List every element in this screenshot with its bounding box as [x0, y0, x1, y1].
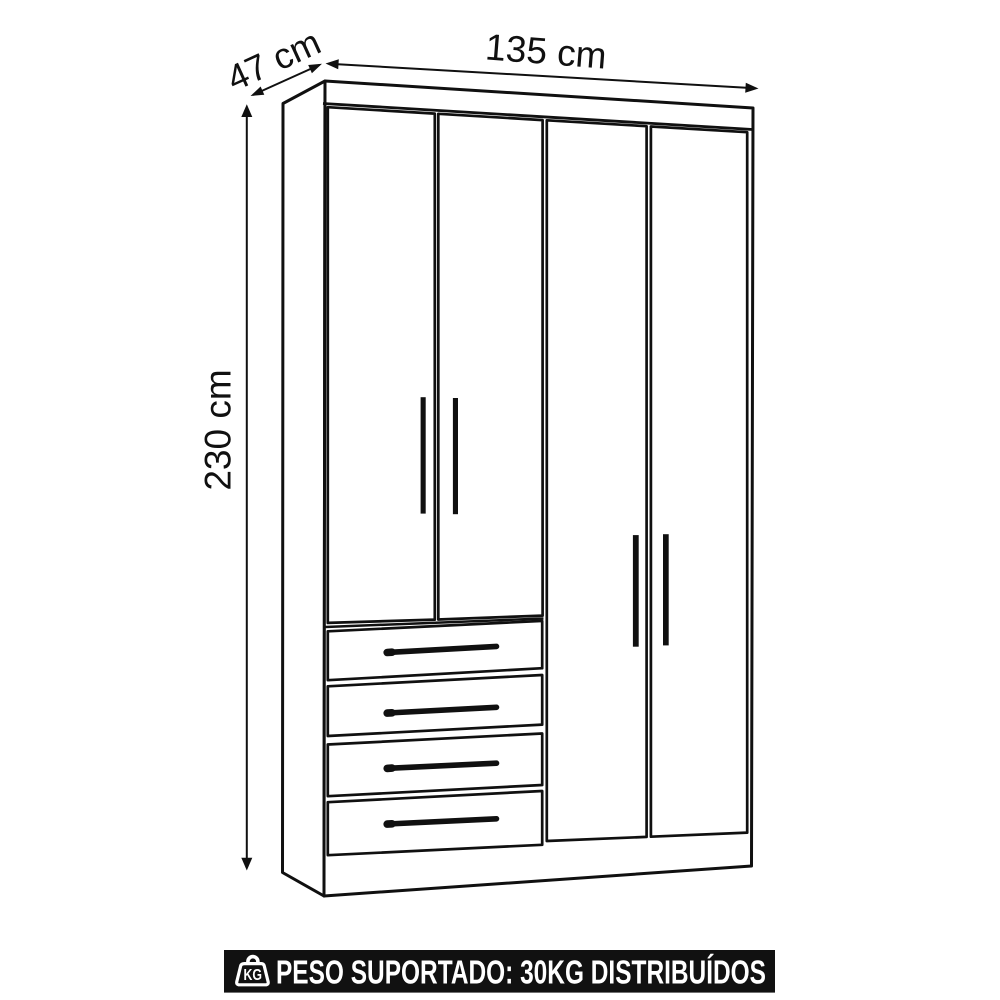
svg-text:230 cm: 230 cm [198, 369, 239, 490]
svg-text:KG: KG [243, 967, 262, 984]
svg-text:PESO SUPORTADO: 30KG DISTRIBUÍ: PESO SUPORTADO: 30KG DISTRIBUÍDOS [276, 954, 766, 991]
